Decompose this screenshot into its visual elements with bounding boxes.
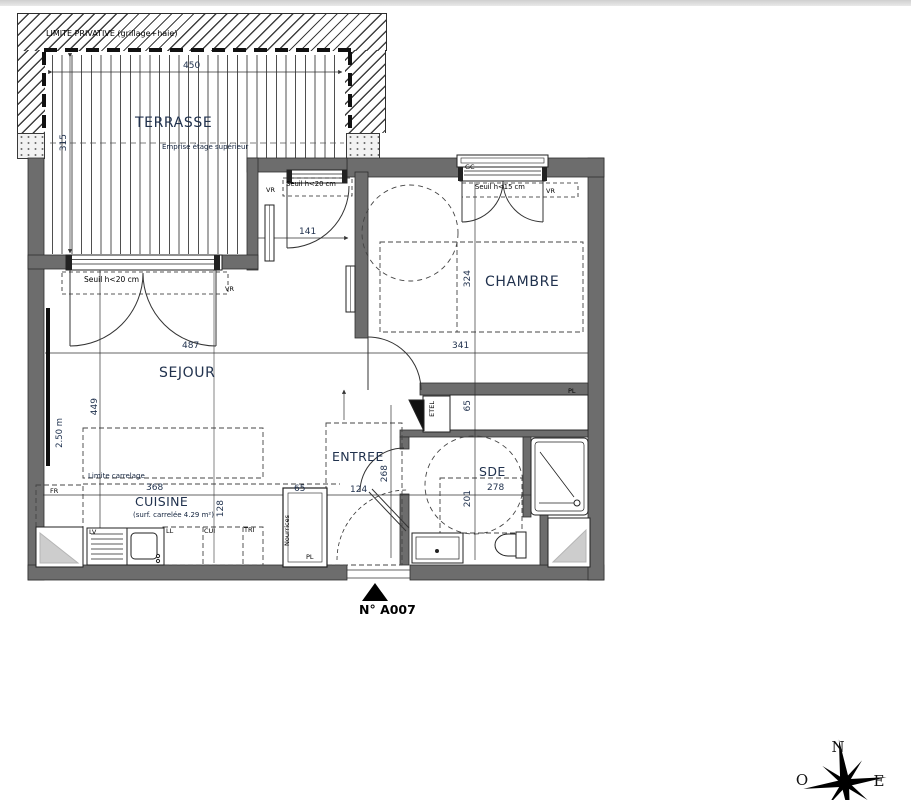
- closet-depth-dim: 65: [464, 400, 473, 411]
- terrace-door-width-dim: 141: [299, 228, 316, 237]
- compass-east-label: E: [874, 772, 885, 790]
- tile-limit-label: Limite carrelage: [88, 473, 145, 480]
- shower-room-label: SDE: [479, 466, 506, 479]
- bay-window-living: [66, 255, 222, 270]
- shower-access-outline: [440, 478, 522, 533]
- electrical-panel-label: ETEL: [429, 401, 436, 417]
- hall-label: ENTREE: [332, 451, 384, 464]
- cooker-label: CUI: [204, 528, 215, 535]
- unit-number-label: N° A007: [359, 604, 416, 617]
- kitchen-label: CUISINE: [135, 496, 188, 509]
- bedroom-threshold-label: Seuil h<15 cm: [475, 184, 525, 191]
- living-depth-dim: 449: [91, 398, 100, 415]
- privacy-limit-label: LIMITE PRIVATIVE (grillage+haie): [46, 30, 177, 38]
- hall-closet-tag: PL: [306, 554, 314, 561]
- bedroom-shutter-label: VR: [546, 188, 555, 195]
- shower-room-depth-dim: 201: [464, 490, 473, 507]
- terrace-depth-dim: 315: [60, 134, 69, 151]
- upper-floor-note: Emprise étage supérieur: [162, 144, 248, 151]
- compass-north-label: N: [831, 738, 844, 756]
- shower: [531, 438, 588, 515]
- manifold-label: Nourrices: [284, 515, 291, 546]
- kitchen-depth-dim: 128: [217, 500, 226, 517]
- entry-door-swing-dashed: [337, 490, 407, 560]
- compass-west-label: O: [796, 771, 808, 789]
- radiator: [265, 205, 355, 312]
- bay-shutter-label: VR: [225, 286, 234, 293]
- toilet: [495, 532, 526, 558]
- bedroom-label: CHAMBRE: [485, 275, 559, 289]
- floor-plan: N O E LIMITE PRIVATIVE (grillage+haie) T…: [0, 0, 911, 800]
- terrace-door-shutter-label: VR: [266, 187, 275, 194]
- kitchen-area-note: (surf. carrelée 4.29 m²): [133, 512, 214, 519]
- compass-rose: N O E: [796, 734, 892, 800]
- washing-machine-label: LL: [166, 528, 173, 535]
- entry-threshold: [347, 570, 410, 578]
- entry-marker-triangle: [362, 583, 388, 601]
- kitchen-counter-outline: [83, 428, 263, 478]
- ceiling-height-bar: [46, 308, 50, 466]
- kitchen-width-dim: 368: [146, 484, 163, 493]
- hall-closet-width-dim: 65: [294, 485, 305, 494]
- kitchen-sink: [127, 528, 164, 565]
- waste-label: TRI: [244, 527, 254, 534]
- dimension-lines: [43, 57, 588, 563]
- bedroom-width-dim: 341: [452, 342, 469, 351]
- fridge-label: FR: [50, 488, 58, 495]
- living-room-label: SEJOUR: [159, 366, 215, 380]
- shower-room-width-dim: 278: [487, 484, 504, 493]
- bedroom-window-tag: GC: [465, 164, 475, 171]
- living-width-dim: 487: [182, 342, 199, 351]
- hall-width-dim: 124: [350, 486, 367, 495]
- terrace-label: TERRASSE: [135, 116, 212, 130]
- bay-threshold-label: Seuil h<20 cm: [84, 276, 139, 284]
- terrace-door-threshold-label: Seuil h<20 cm: [286, 181, 336, 188]
- ceiling-height-label: 2.50 m: [56, 418, 65, 448]
- vanity: [412, 533, 463, 563]
- dishwasher-label: LV: [89, 529, 96, 536]
- bedroom-depth-dim: 324: [464, 270, 473, 287]
- bedroom-closet-label: PL: [568, 388, 576, 395]
- hall-depth-dim: 268: [381, 465, 390, 482]
- terrace-width-dim: 450: [183, 62, 200, 71]
